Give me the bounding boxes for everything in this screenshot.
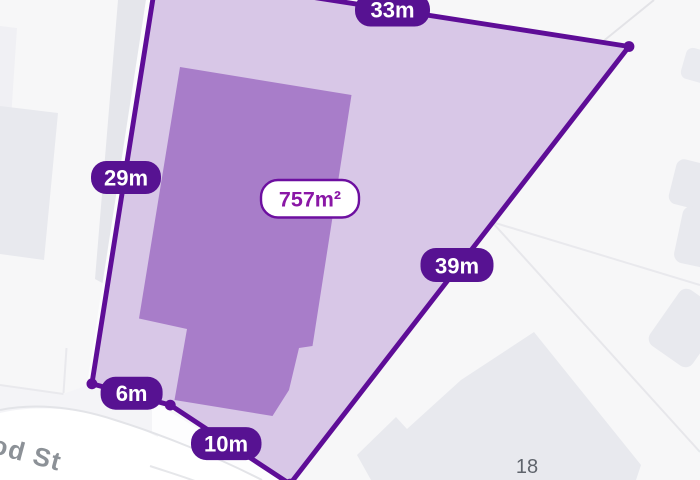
svg-text:18: 18: [516, 456, 538, 478]
svg-text:29m: 29m: [104, 165, 148, 190]
svg-text:757m²: 757m²: [279, 188, 341, 212]
svg-text:6m: 6m: [116, 381, 148, 406]
svg-text:39m: 39m: [435, 253, 479, 278]
svg-text:10m: 10m: [204, 432, 248, 457]
svg-text:33m: 33m: [370, 0, 414, 23]
